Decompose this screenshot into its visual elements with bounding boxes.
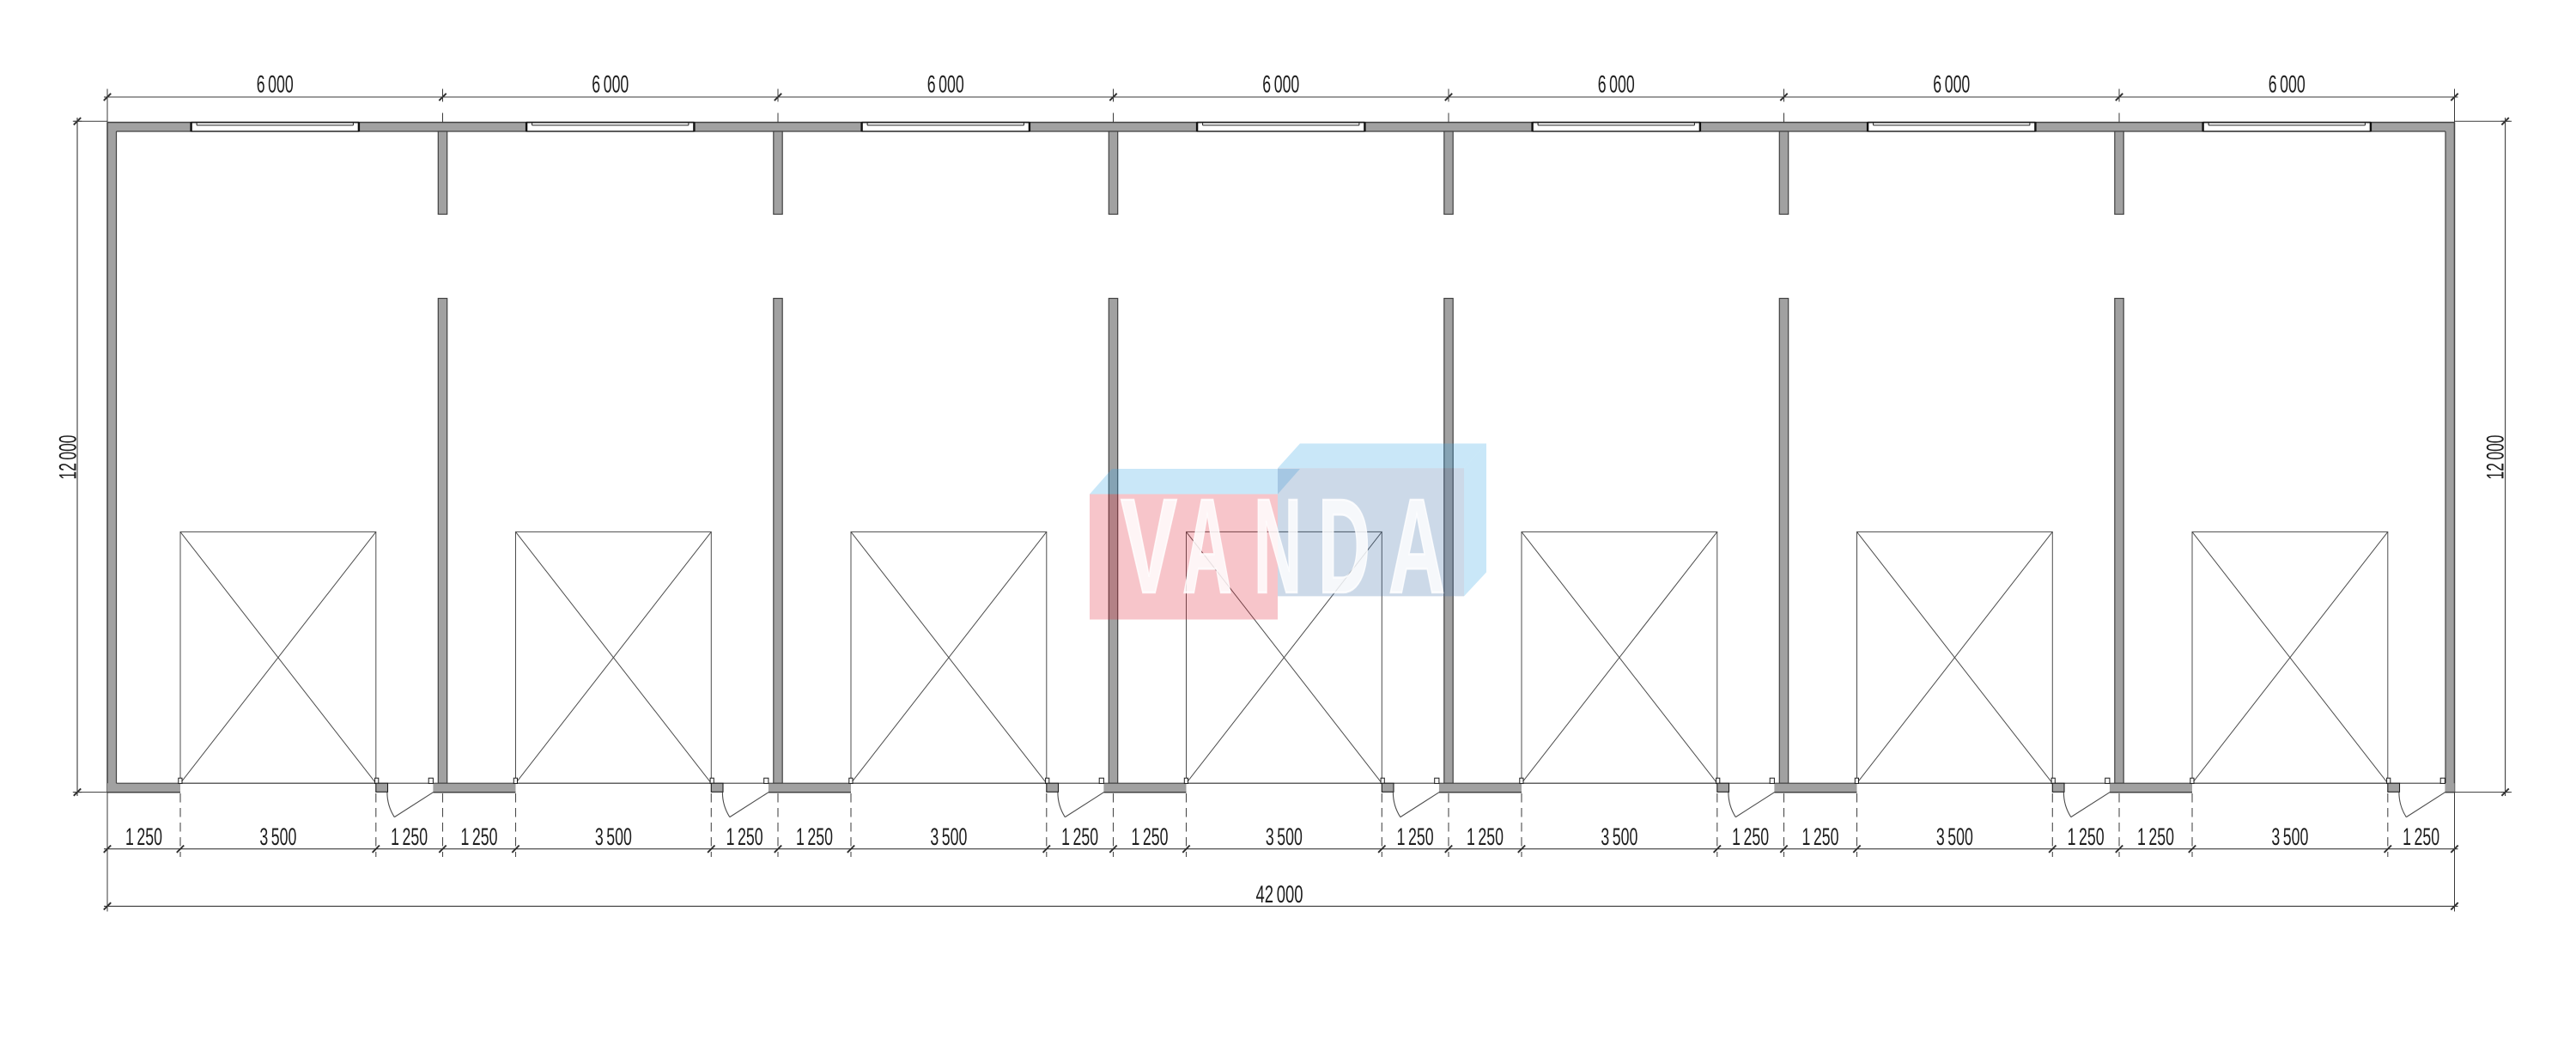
- svg-text:N: N: [1254, 471, 1302, 622]
- svg-text:D: D: [1318, 471, 1370, 622]
- svg-text:3 500: 3 500: [1936, 823, 1973, 850]
- svg-text:6 000: 6 000: [1933, 70, 1970, 98]
- svg-text:V: V: [1121, 471, 1177, 622]
- svg-text:1 250: 1 250: [1397, 823, 1434, 850]
- svg-text:6 000: 6 000: [1598, 70, 1635, 98]
- svg-text:1 250: 1 250: [2137, 823, 2174, 850]
- svg-text:3 500: 3 500: [259, 823, 296, 850]
- svg-text:6 000: 6 000: [1262, 70, 1299, 98]
- svg-text:3 500: 3 500: [1601, 823, 1637, 850]
- svg-text:1 250: 1 250: [1467, 823, 1504, 850]
- svg-text:1 250: 1 250: [461, 823, 498, 850]
- svg-text:A: A: [1182, 471, 1232, 622]
- svg-text:3 500: 3 500: [930, 823, 967, 850]
- svg-text:12 000: 12 000: [2482, 435, 2509, 480]
- svg-text:A: A: [1388, 471, 1445, 622]
- svg-text:1 250: 1 250: [125, 823, 162, 850]
- svg-text:1 250: 1 250: [1132, 823, 1169, 850]
- svg-text:3 500: 3 500: [595, 823, 632, 850]
- svg-text:12 000: 12 000: [54, 435, 82, 480]
- svg-text:1 250: 1 250: [1802, 823, 1839, 850]
- svg-text:1 250: 1 250: [796, 823, 833, 850]
- svg-text:6 000: 6 000: [927, 70, 964, 98]
- svg-text:3 500: 3 500: [2271, 823, 2308, 850]
- svg-text:1 250: 1 250: [2068, 823, 2105, 850]
- svg-text:1 250: 1 250: [1061, 823, 1098, 850]
- svg-text:6 000: 6 000: [257, 70, 294, 98]
- svg-text:6 000: 6 000: [592, 70, 629, 98]
- svg-text:3 500: 3 500: [1266, 823, 1303, 850]
- svg-text:1 250: 1 250: [391, 823, 428, 850]
- svg-text:1 250: 1 250: [1732, 823, 1769, 850]
- svg-text:42 000: 42 000: [1256, 880, 1303, 908]
- svg-text:1 250: 1 250: [726, 823, 763, 850]
- svg-text:6 000: 6 000: [2269, 70, 2306, 98]
- svg-text:1 250: 1 250: [2403, 823, 2439, 850]
